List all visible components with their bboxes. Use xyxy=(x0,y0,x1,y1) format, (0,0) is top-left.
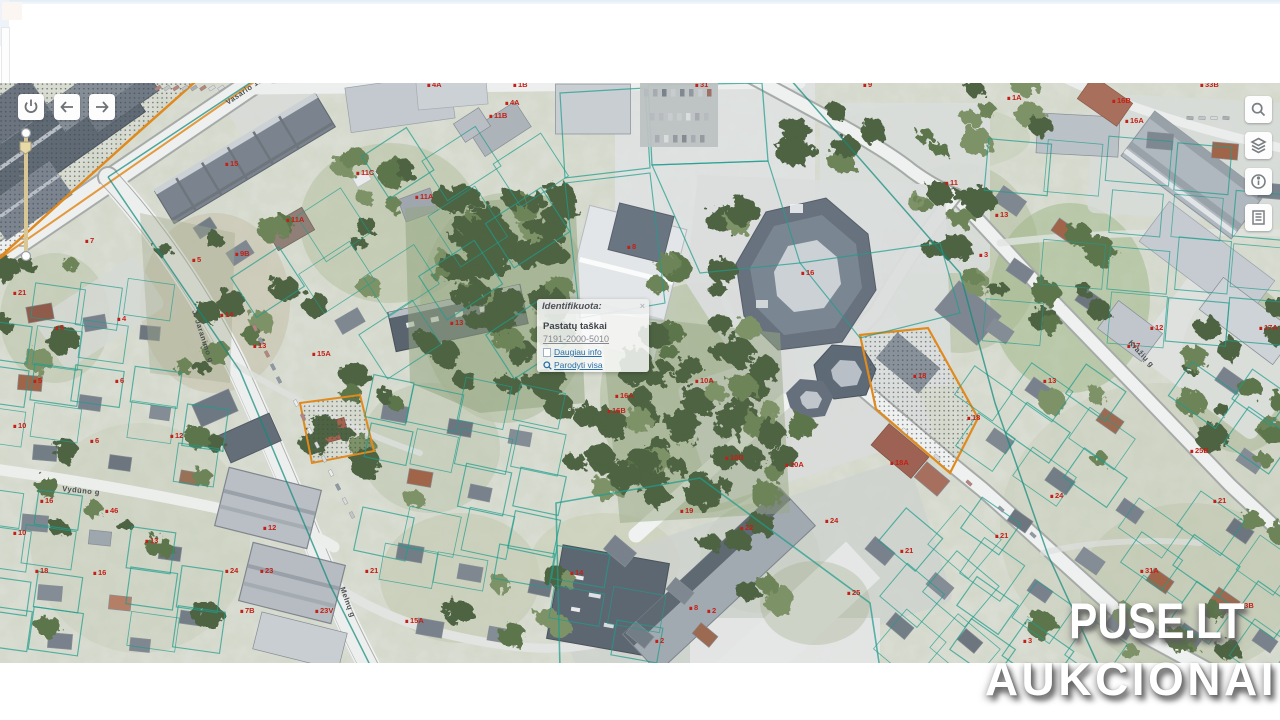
svg-text:21: 21 xyxy=(370,566,378,575)
svg-text:24: 24 xyxy=(1055,491,1064,500)
svg-text:22: 22 xyxy=(745,523,753,532)
svg-text:16B: 16B xyxy=(612,406,626,415)
svg-text:4A: 4A xyxy=(510,98,520,107)
svg-text:10B: 10B xyxy=(730,453,744,462)
svg-text:8: 8 xyxy=(632,242,636,251)
svg-text:6: 6 xyxy=(120,376,124,385)
svg-text:7B: 7B xyxy=(245,606,255,615)
svg-text:18: 18 xyxy=(972,413,980,422)
svg-text:10A: 10A xyxy=(790,460,804,469)
svg-text:16B: 16B xyxy=(1117,96,1131,105)
svg-text:1A: 1A xyxy=(1012,93,1022,102)
svg-text:46: 46 xyxy=(110,506,118,515)
svg-text:16A: 16A xyxy=(620,391,634,400)
svg-text:17A: 17A xyxy=(1264,323,1278,332)
svg-text:21: 21 xyxy=(1218,496,1226,505)
svg-text:3: 3 xyxy=(1028,636,1032,645)
svg-text:10: 10 xyxy=(18,421,26,430)
svg-text:15: 15 xyxy=(230,159,238,168)
svg-text:13: 13 xyxy=(1048,376,1056,385)
svg-text:14: 14 xyxy=(225,310,234,319)
svg-text:16A: 16A xyxy=(1130,116,1144,125)
svg-text:11A: 11A xyxy=(291,215,305,224)
svg-text:8: 8 xyxy=(694,603,698,612)
svg-text:12: 12 xyxy=(268,523,276,532)
svg-text:12: 12 xyxy=(1155,323,1163,332)
svg-text:6: 6 xyxy=(60,323,64,332)
svg-text:25B: 25B xyxy=(1195,446,1209,455)
svg-text:11A: 11A xyxy=(420,192,434,201)
svg-text:21: 21 xyxy=(905,546,913,555)
svg-text:13: 13 xyxy=(1000,210,1008,219)
svg-text:24: 24 xyxy=(830,516,839,525)
svg-text:18A: 18A xyxy=(895,458,909,467)
svg-text:11: 11 xyxy=(950,178,958,187)
svg-text:7: 7 xyxy=(90,236,94,245)
svg-text:10A: 10A xyxy=(700,376,714,385)
svg-text:4A: 4A xyxy=(432,83,442,89)
svg-text:1B: 1B xyxy=(518,83,528,89)
svg-text:23V: 23V xyxy=(320,606,333,615)
svg-text:12: 12 xyxy=(175,431,183,440)
svg-text:18: 18 xyxy=(40,566,48,575)
svg-text:2: 2 xyxy=(712,606,716,615)
svg-text:5: 5 xyxy=(38,376,42,385)
svg-text:15A: 15A xyxy=(410,616,424,625)
svg-text:24: 24 xyxy=(230,566,239,575)
svg-text:31: 31 xyxy=(700,83,708,89)
svg-text:10: 10 xyxy=(18,528,26,537)
svg-text:5: 5 xyxy=(197,255,201,264)
svg-text:6: 6 xyxy=(95,436,99,445)
svg-text:21: 21 xyxy=(1000,531,1008,540)
svg-text:2: 2 xyxy=(660,636,664,645)
svg-text:11B: 11B xyxy=(494,111,508,120)
svg-text:16: 16 xyxy=(806,268,814,277)
svg-text:31A: 31A xyxy=(1145,566,1159,575)
svg-text:9B: 9B xyxy=(240,249,250,258)
svg-text:16: 16 xyxy=(45,496,53,505)
svg-text:25: 25 xyxy=(852,588,860,597)
svg-text:13: 13 xyxy=(455,318,463,327)
svg-text:11C: 11C xyxy=(361,168,375,177)
svg-text:23: 23 xyxy=(265,566,273,575)
svg-text:18: 18 xyxy=(918,371,926,380)
svg-text:16: 16 xyxy=(98,568,106,577)
svg-text:13: 13 xyxy=(150,536,158,545)
svg-text:19: 19 xyxy=(685,506,693,515)
svg-text:13: 13 xyxy=(258,341,266,350)
svg-text:15A: 15A xyxy=(317,349,331,358)
svg-text:3: 3 xyxy=(984,250,988,259)
svg-text:9: 9 xyxy=(868,83,872,89)
svg-text:14: 14 xyxy=(575,568,584,577)
svg-text:33B: 33B xyxy=(1205,83,1219,89)
